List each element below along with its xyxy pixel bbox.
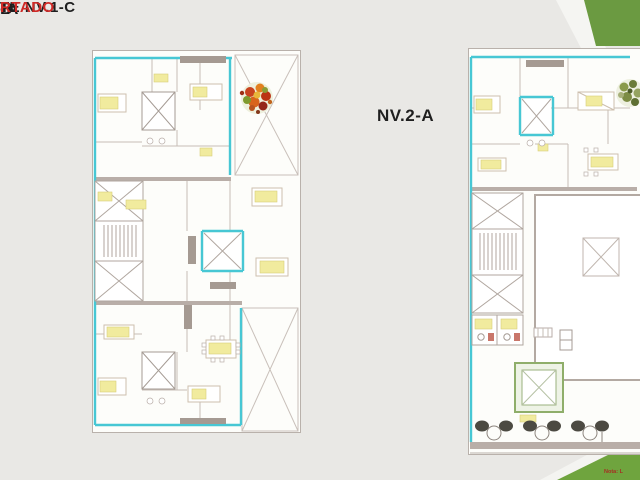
corner-note-text: Nota: L <box>604 470 623 476</box>
slab-band <box>95 301 242 305</box>
slide-canvas: -A B TE NV.1-C RTADO NV.2-A Nota: L <box>0 0 640 480</box>
planter-icon <box>515 363 563 412</box>
plan-title-nv2a: NV.2-A <box>377 107 434 124</box>
slab-band <box>470 442 640 449</box>
floor-plan-level-1 <box>92 50 301 433</box>
floor-plan-level-2 <box>468 48 640 455</box>
bathrooms <box>472 315 523 345</box>
staircase-icon <box>472 193 523 313</box>
slab-band <box>471 187 637 191</box>
closet <box>526 60 564 67</box>
plan-label-cortado: RTADO <box>0 0 55 15</box>
slab-band <box>95 177 231 181</box>
elevator-shaft-icon <box>522 99 551 133</box>
open-hall <box>535 195 640 380</box>
